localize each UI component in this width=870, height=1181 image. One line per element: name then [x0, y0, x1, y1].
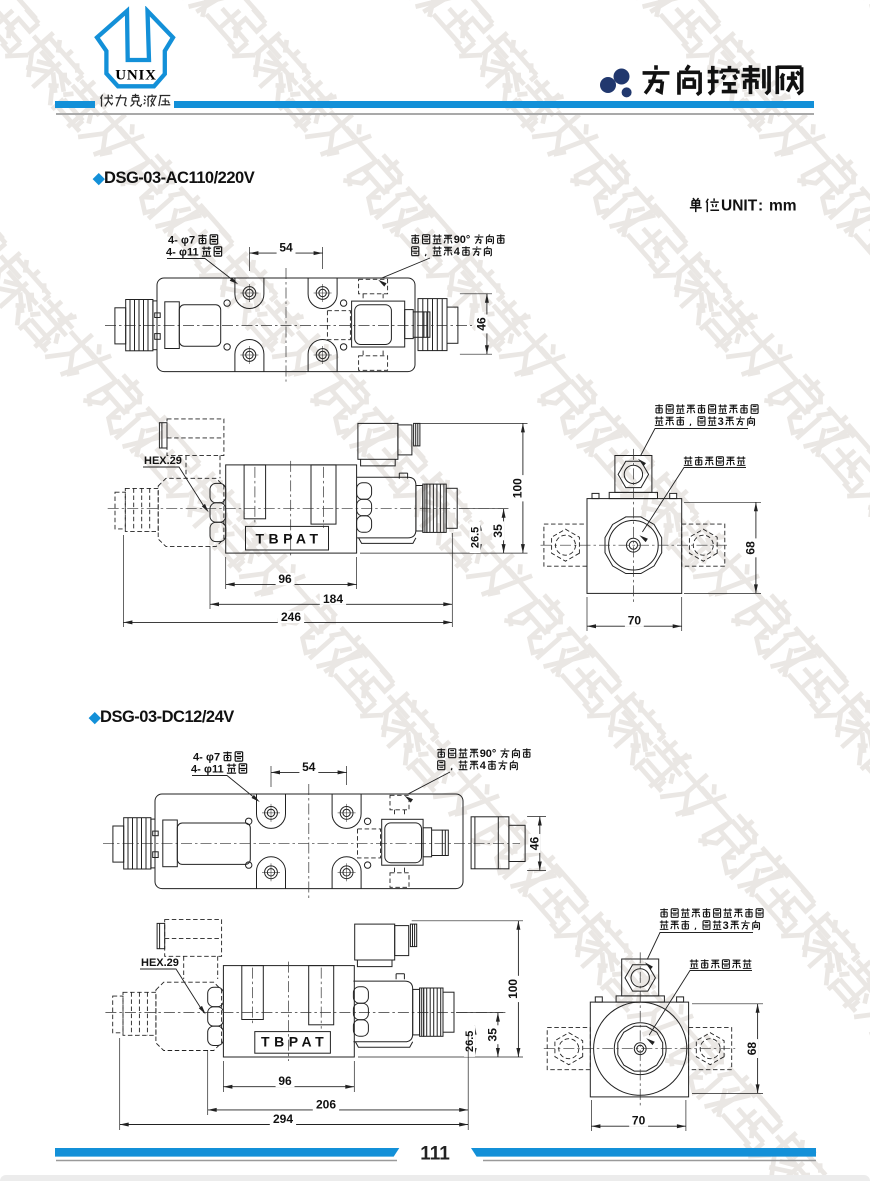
svg-text:4: 4	[454, 246, 461, 258]
svg-text:90°: 90°	[454, 234, 471, 246]
svg-text:φ: φ	[181, 235, 189, 247]
svg-text:11: 11	[187, 247, 199, 259]
svg-text:46: 46	[527, 837, 541, 851]
svg-text:HEX.29: HEX.29	[141, 957, 179, 969]
svg-text:3: 3	[718, 416, 724, 428]
svg-text:294: 294	[273, 1112, 293, 1126]
svg-text:68: 68	[743, 541, 757, 555]
svg-text:206: 206	[316, 1097, 336, 1111]
svg-text:4-: 4-	[193, 752, 203, 764]
svg-text:4: 4	[480, 760, 487, 772]
svg-text:26.5: 26.5	[464, 1031, 476, 1052]
svg-text:70: 70	[628, 614, 642, 628]
svg-text:96: 96	[278, 572, 292, 586]
svg-text:100: 100	[506, 979, 520, 999]
svg-text:68: 68	[745, 1042, 759, 1056]
svg-text:7: 7	[214, 752, 220, 764]
svg-text:35: 35	[491, 524, 505, 538]
svg-text:4-: 4-	[191, 764, 201, 776]
svg-text:φ: φ	[204, 764, 212, 776]
svg-text:246: 246	[281, 610, 301, 624]
svg-text:TBPAT: TBPAT	[261, 1034, 328, 1050]
svg-text:26.5: 26.5	[469, 527, 481, 548]
svg-text:3: 3	[723, 920, 729, 932]
svg-text:90°: 90°	[480, 748, 497, 760]
svg-text:111: 111	[420, 1144, 450, 1165]
svg-text:100: 100	[511, 478, 525, 498]
svg-text:4-: 4-	[168, 235, 178, 247]
svg-text:φ: φ	[179, 247, 187, 259]
svg-text:54: 54	[302, 760, 316, 774]
svg-text:35: 35	[485, 1028, 499, 1042]
svg-text:7: 7	[189, 235, 195, 247]
svg-text:46: 46	[474, 317, 488, 331]
svg-text:φ: φ	[206, 752, 214, 764]
svg-text:70: 70	[632, 1114, 646, 1128]
svg-text:11: 11	[212, 764, 224, 776]
svg-text:HEX.29: HEX.29	[144, 455, 182, 467]
svg-text:184: 184	[323, 592, 343, 606]
svg-text:4-: 4-	[166, 247, 176, 259]
svg-text:TBPAT: TBPAT	[255, 531, 322, 547]
svg-text:54: 54	[279, 241, 293, 255]
svg-text:96: 96	[278, 1074, 292, 1088]
